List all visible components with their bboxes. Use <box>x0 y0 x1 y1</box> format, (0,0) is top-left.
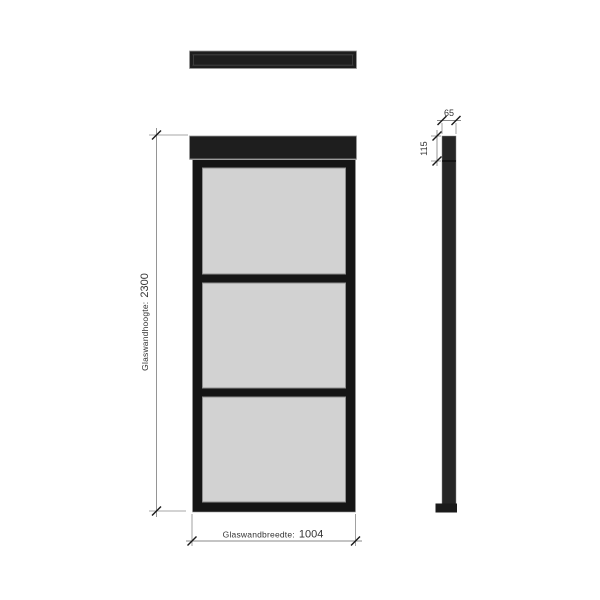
top-profile-bar <box>190 51 357 69</box>
height-dimension-value: 2300 <box>139 273 151 297</box>
height-dimension: Glaswandhoogte:2300 <box>139 128 188 517</box>
profile-width-value: 65 <box>444 108 454 118</box>
top-section-value: 115 <box>419 141 429 155</box>
profile-width-dimension: 65 <box>437 108 461 134</box>
side-profile-post <box>442 136 456 512</box>
height-dimension-text: Glaswandhoogte:2300 <box>139 273 151 371</box>
glass-panel-2 <box>203 283 346 388</box>
width-dimension-label: Glaswandbreedte: <box>223 530 295 540</box>
top-view <box>190 51 357 69</box>
side-profile-view <box>436 136 458 513</box>
height-dimension-label: Glaswandhoogte: <box>140 302 150 371</box>
width-dimension-value: 1004 <box>299 529 323 541</box>
glass-panel-1 <box>203 168 346 274</box>
glass-panel-3 <box>203 397 346 502</box>
width-dimension-text: Glaswandbreedte:1004 <box>223 529 324 541</box>
top-rail-profile <box>190 136 357 159</box>
width-dimension: Glaswandbreedte:1004 <box>186 514 362 546</box>
technical-drawing-canvas: Glaswandhoogte:2300 Glaswandbreedte:1004… <box>0 0 600 600</box>
profile-top-section-dimension: 115 <box>419 130 442 166</box>
front-elevation <box>190 136 357 512</box>
side-profile-foot <box>436 504 458 513</box>
